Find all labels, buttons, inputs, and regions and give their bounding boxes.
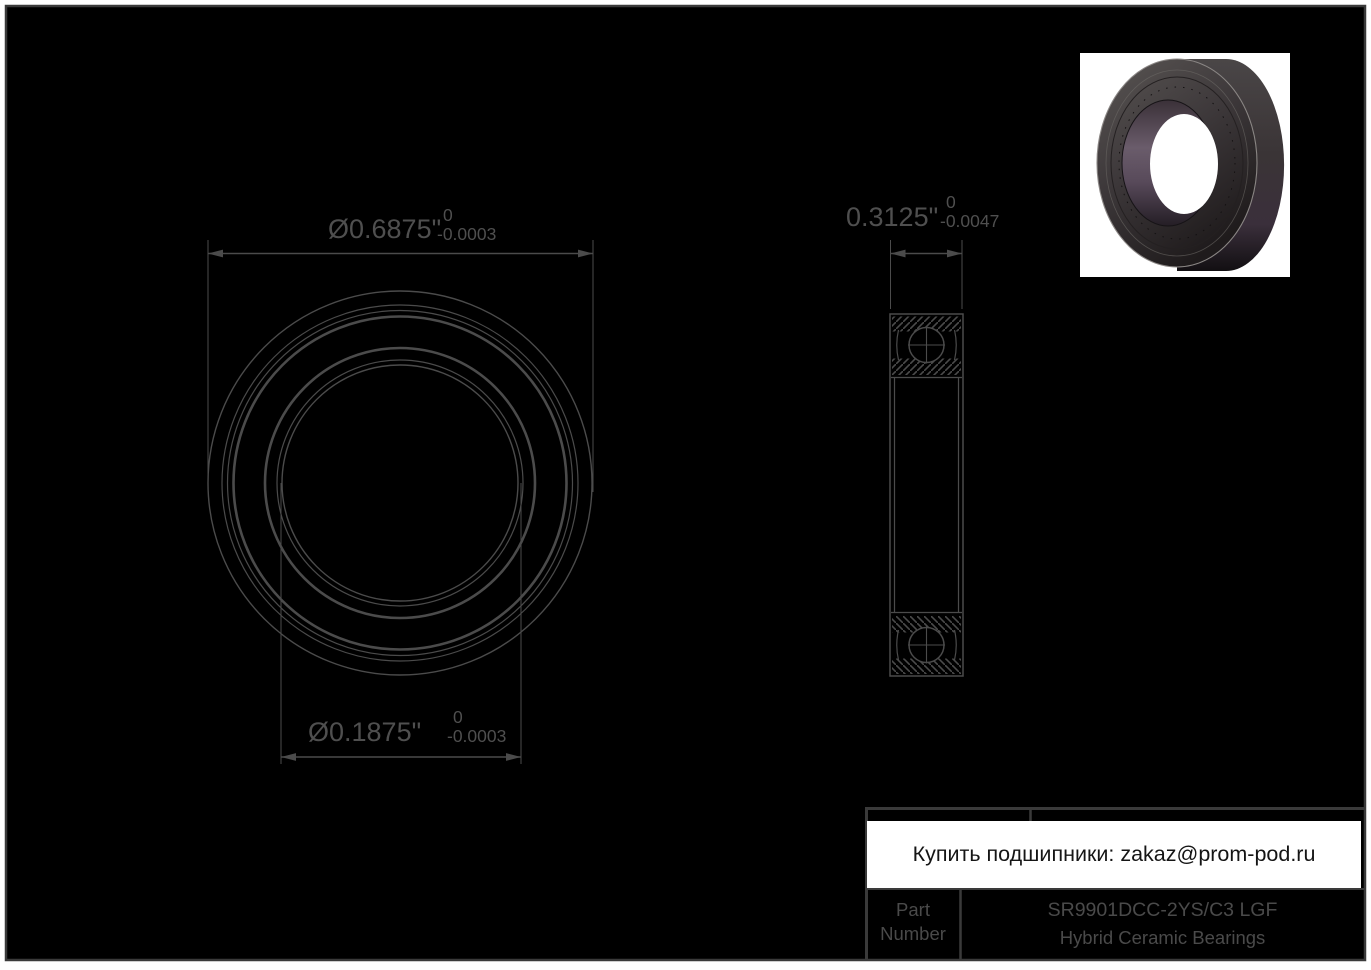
drawing-page: Ø0.6875" 0 -0.0003 Ø0.1875" 0 -0.0003 0.… — [0, 0, 1371, 970]
bearing-bore-hole — [1150, 114, 1218, 214]
width-tolerance-lower: -0.0047 — [940, 211, 999, 231]
od-dimension-value: Ø0.6875" — [328, 214, 441, 244]
seller-banner-text: Купить подшипники: zakaz@prom-pod.ru — [913, 842, 1316, 867]
seller-banner[interactable]: Купить подшипники: zakaz@prom-pod.ru — [867, 821, 1361, 888]
width-dimension-value: 0.3125" — [846, 202, 938, 232]
width-tolerance-upper: 0 — [946, 192, 956, 212]
part-number-cell: SR9901DCC-2YS/C3 LGF Hybrid Ceramic Bear… — [961, 897, 1364, 951]
part-number-label: Part Number — [866, 898, 960, 946]
bearing-3d-render — [1080, 53, 1290, 277]
bearing-3d-image — [1080, 53, 1290, 277]
bearing-series: Hybrid Ceramic Bearings — [961, 924, 1364, 951]
part-number-value: SR9901DCC-2YS/C3 LGF — [961, 897, 1364, 924]
bore-tolerance-upper: 0 — [453, 707, 463, 727]
bore-dimension-value: Ø0.1875" — [308, 717, 421, 747]
od-tolerance-upper: 0 — [443, 205, 453, 225]
od-tolerance-lower: -0.0003 — [437, 224, 496, 244]
bore-tolerance-lower: -0.0003 — [447, 726, 506, 746]
